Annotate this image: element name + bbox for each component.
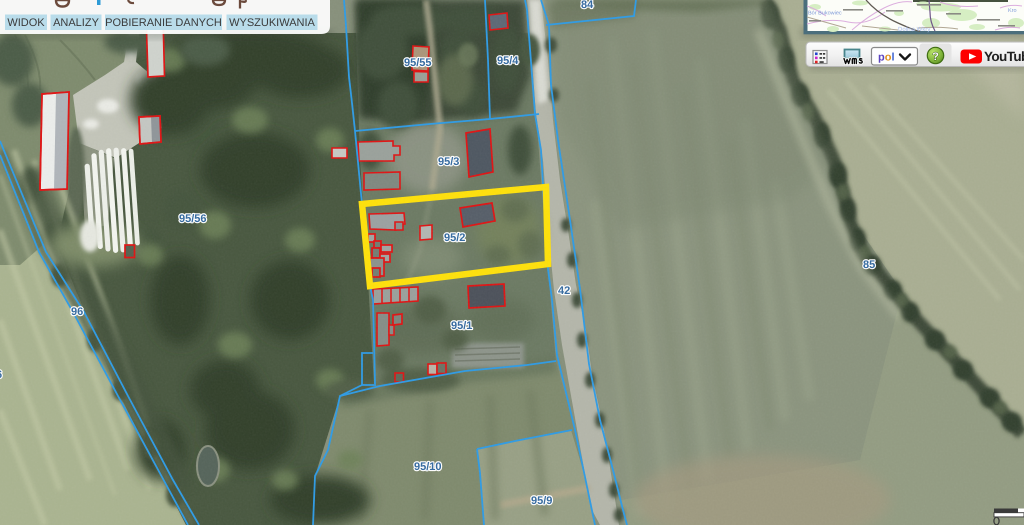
svg-text:POBIERANIE DANYCH: POBIERANIE DANYCH xyxy=(105,17,222,29)
svg-text:WYSZUKIWANIA: WYSZUKIWANIA xyxy=(229,17,315,29)
svg-text:YouTube: YouTube xyxy=(984,49,1024,64)
svg-text:pol: pol xyxy=(878,52,895,64)
svg-text:ANALIZY: ANALIZY xyxy=(53,17,100,29)
svg-text:Bór Bukowiec: Bór Bukowiec xyxy=(808,10,842,17)
svg-text:Kro: Kro xyxy=(1008,8,1017,14)
svg-text:WIDOK: WIDOK xyxy=(7,17,45,29)
svg-text:Dolina Wkry: Dolina Wkry xyxy=(898,26,930,33)
svg-text:?: ? xyxy=(932,51,939,63)
